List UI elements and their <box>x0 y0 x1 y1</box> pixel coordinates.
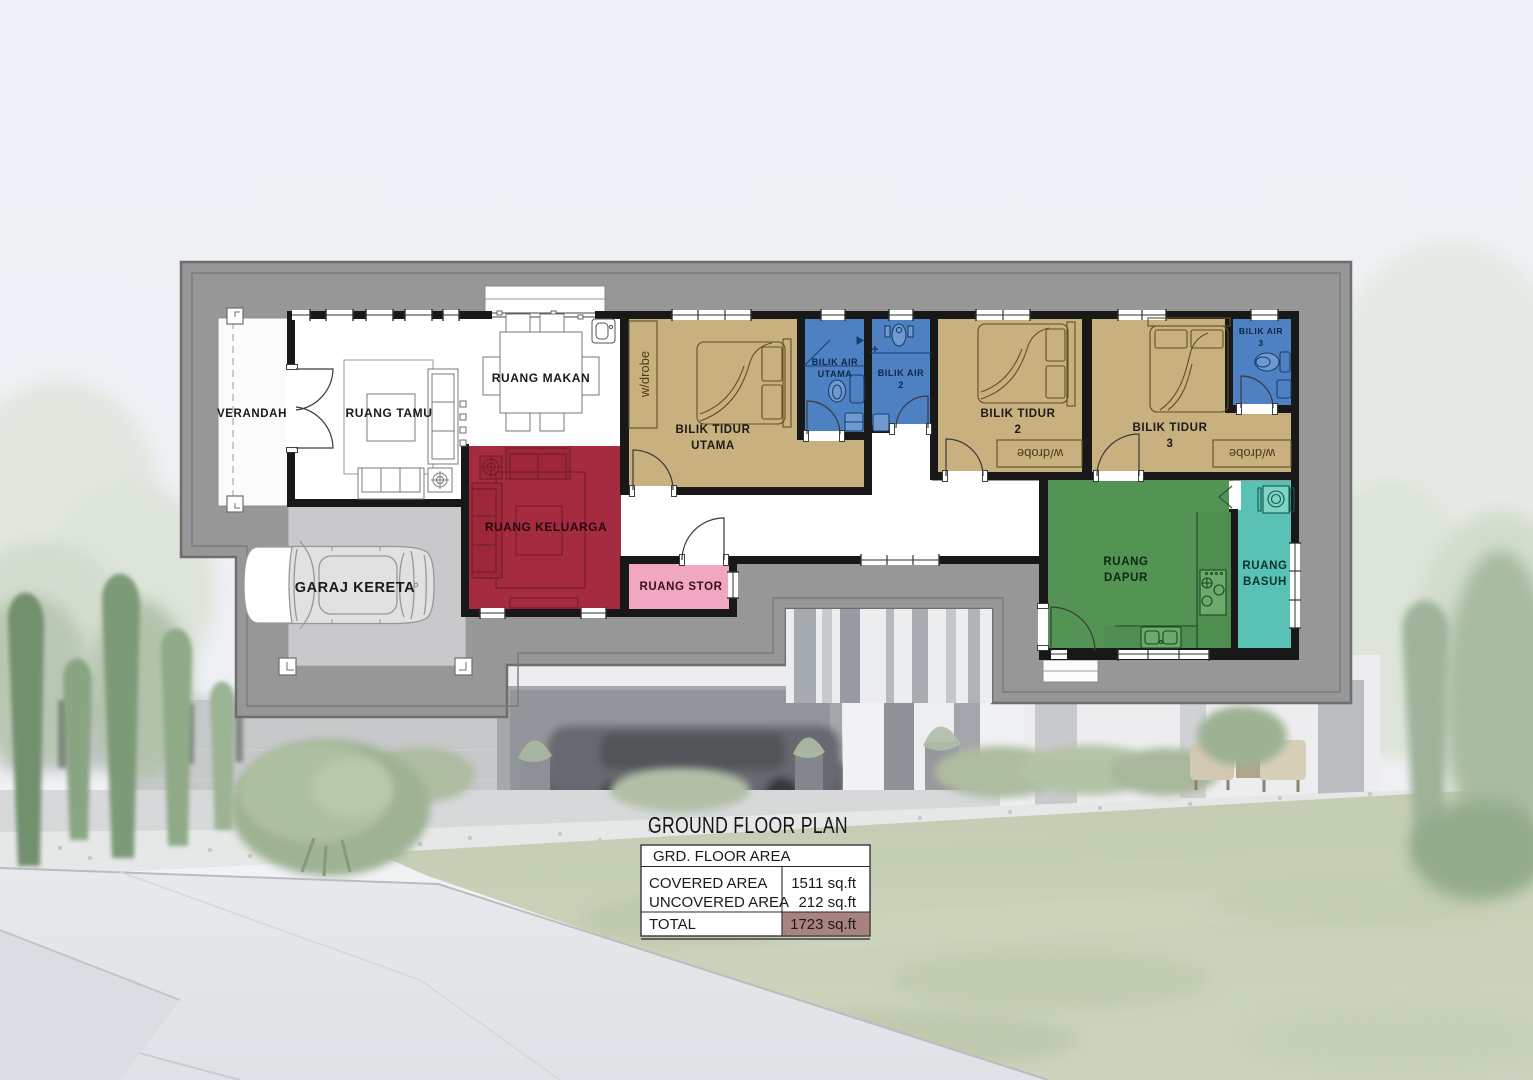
svg-text:UNCOVERED AREA: UNCOVERED AREA <box>649 894 789 911</box>
svg-text:RUANG TAMU: RUANG TAMU <box>345 406 432 420</box>
svg-text:2: 2 <box>898 380 904 390</box>
svg-text:GROUND FLOOR PLAN: GROUND FLOOR PLAN <box>648 813 848 839</box>
svg-text:2: 2 <box>1015 424 1022 436</box>
svg-text:3: 3 <box>1258 338 1263 348</box>
svg-text:w/drobe: w/drobe <box>1017 446 1064 461</box>
svg-text:BILIK TIDUR: BILIK TIDUR <box>1133 422 1208 434</box>
svg-text:GARAJ KERETA: GARAJ KERETA <box>295 580 416 596</box>
svg-text:BILIK TIDUR: BILIK TIDUR <box>676 424 751 436</box>
svg-text:RUANG: RUANG <box>1242 560 1287 572</box>
svg-text:BILIK AIR: BILIK AIR <box>1239 326 1283 336</box>
svg-text:BILIK AIR: BILIK AIR <box>812 357 859 367</box>
svg-text:RUANG: RUANG <box>1103 556 1148 568</box>
svg-text:RUANG STOR: RUANG STOR <box>639 581 722 593</box>
svg-text:BILIK TIDUR: BILIK TIDUR <box>981 408 1056 420</box>
svg-text:1511 sq.ft: 1511 sq.ft <box>791 875 857 892</box>
svg-text:UTAMA: UTAMA <box>691 440 735 452</box>
svg-text:1723 sq.ft: 1723 sq.ft <box>790 916 857 933</box>
svg-text:GRD. FLOOR AREA: GRD. FLOOR AREA <box>653 848 791 865</box>
svg-text:VERANDAH: VERANDAH <box>217 408 287 420</box>
svg-text:BILIK AIR: BILIK AIR <box>878 368 925 378</box>
svg-text:BASUH: BASUH <box>1243 576 1287 588</box>
svg-text:DAPUR: DAPUR <box>1104 572 1148 584</box>
svg-text:w/drobe: w/drobe <box>1229 446 1276 461</box>
svg-text:RUANG KELUARGA: RUANG KELUARGA <box>485 520 607 534</box>
svg-text:UTAMA: UTAMA <box>818 369 853 379</box>
svg-text:TOTAL: TOTAL <box>649 916 696 933</box>
svg-text:212 sq.ft: 212 sq.ft <box>798 894 856 911</box>
svg-text:w/drobe: w/drobe <box>637 351 652 398</box>
svg-text:3: 3 <box>1167 438 1174 450</box>
svg-text:RUANG MAKAN: RUANG MAKAN <box>492 371 591 385</box>
svg-text:COVERED AREA: COVERED AREA <box>649 875 767 892</box>
